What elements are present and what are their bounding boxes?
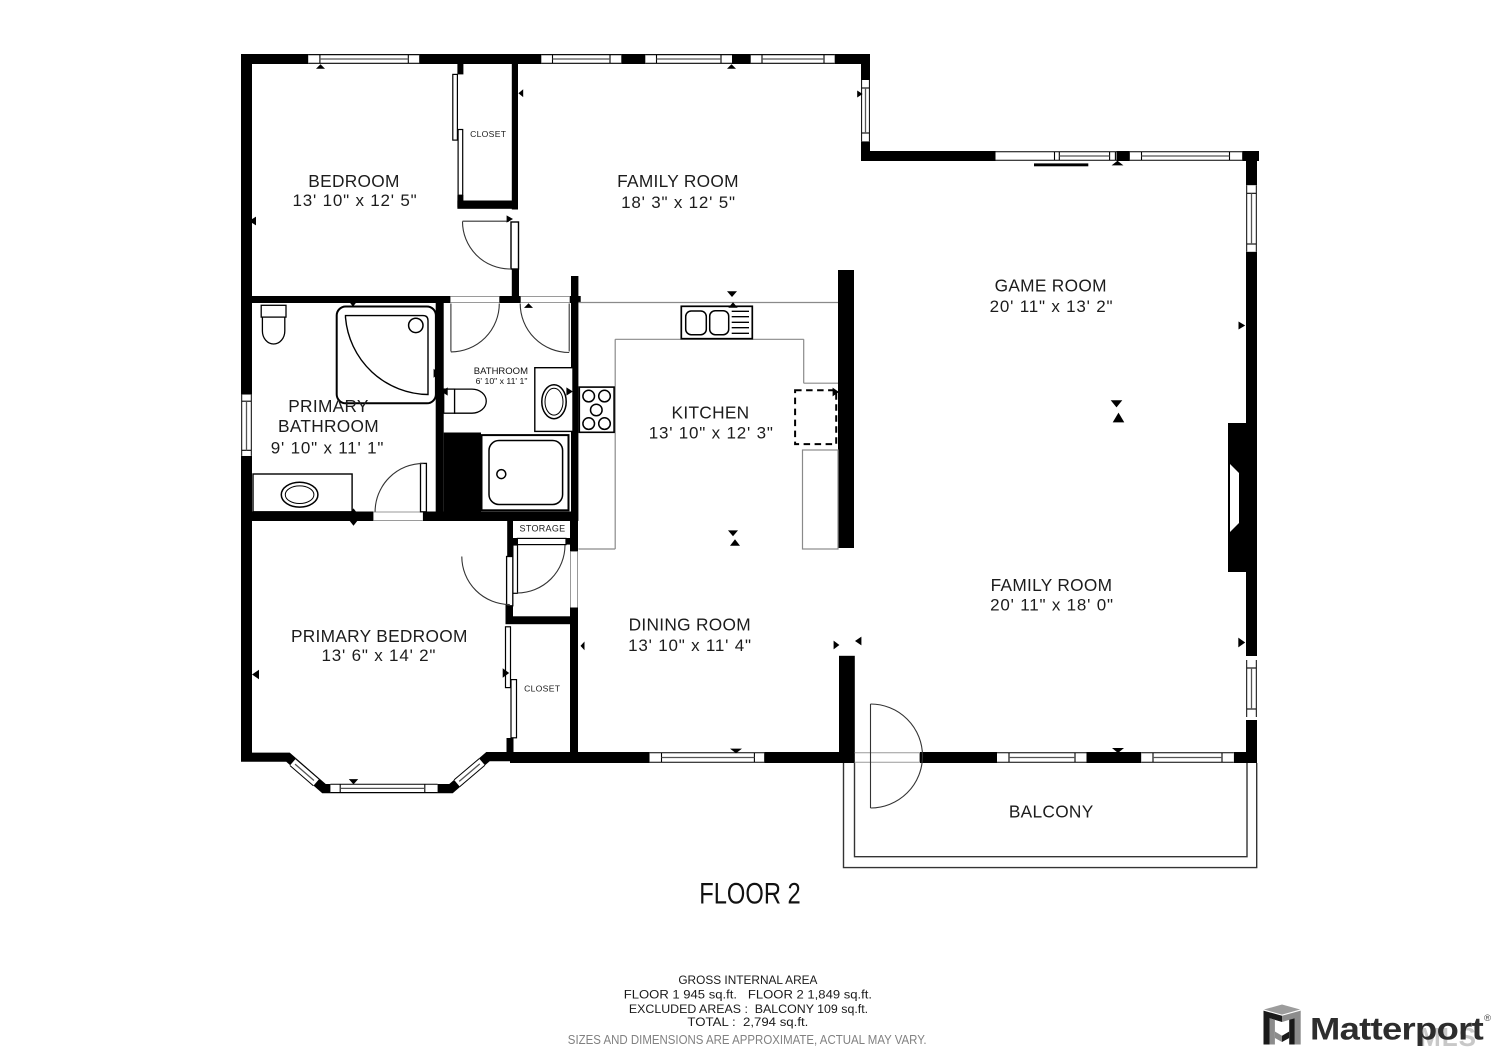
svg-text:BATHROOM: BATHROOM	[278, 416, 379, 436]
svg-text:18' 3" x 12' 5": 18' 3" x 12' 5"	[621, 193, 736, 212]
svg-text:FLOOR 1 945 sq.ft. FLOOR 2 1: FLOOR 1 945 sq.ft. FLOOR 2 1,849 sq.ft.	[624, 987, 872, 1001]
svg-text:DINING ROOM: DINING ROOM	[629, 614, 751, 634]
svg-text:GAME ROOM: GAME ROOM	[995, 276, 1107, 296]
svg-text:BEDROOM: BEDROOM	[308, 171, 399, 191]
svg-text:GROSS INTERNAL AREA: GROSS INTERNAL AREA	[678, 973, 818, 987]
svg-text:FAMILY ROOM: FAMILY ROOM	[991, 575, 1113, 595]
svg-text:20' 11" x 13' 2": 20' 11" x 13' 2"	[990, 297, 1114, 316]
svg-text:CLOSET: CLOSET	[470, 129, 507, 139]
svg-text:®: ®	[1484, 1013, 1491, 1024]
svg-text:13' 6" x 14' 2": 13' 6" x 14' 2"	[322, 646, 437, 665]
svg-text:STORAGE: STORAGE	[520, 524, 566, 534]
svg-text:20' 11" x 18' 0": 20' 11" x 18' 0"	[990, 596, 1114, 615]
svg-text:FLOOR 2: FLOOR 2	[699, 878, 801, 911]
svg-text:KITCHEN: KITCHEN	[672, 403, 750, 423]
svg-text:PRIMARY BEDROOM: PRIMARY BEDROOM	[291, 626, 468, 646]
svg-text:CLOSET: CLOSET	[524, 684, 561, 694]
svg-text:13' 10" x 11' 4": 13' 10" x 11' 4"	[628, 636, 752, 655]
svg-text:TOTAL : 2,794 sq.ft.: TOTAL : 2,794 sq.ft.	[687, 1015, 808, 1029]
svg-text:FAMILY ROOM: FAMILY ROOM	[617, 171, 739, 191]
svg-text:13' 10" x 12' 3": 13' 10" x 12' 3"	[649, 423, 774, 442]
svg-text:PRIMARY: PRIMARY	[288, 396, 369, 416]
svg-text:SIZES AND DIMENSIONS ARE APPRO: SIZES AND DIMENSIONS ARE APPROXIMATE, AC…	[568, 1032, 927, 1047]
svg-text:9' 10" x 11' 1": 9' 10" x 11' 1"	[271, 438, 384, 457]
svg-text:6' 10" x 11' 1": 6' 10" x 11' 1"	[476, 376, 528, 386]
svg-text:EXCLUDED AREAS : BALCONY 109: EXCLUDED AREAS : BALCONY 109 sq.ft.	[629, 1002, 868, 1016]
svg-text:Matterport: Matterport	[1310, 1011, 1484, 1047]
svg-text:BALCONY: BALCONY	[1009, 802, 1094, 822]
svg-text:13' 10" x 12' 5": 13' 10" x 12' 5"	[293, 191, 418, 210]
